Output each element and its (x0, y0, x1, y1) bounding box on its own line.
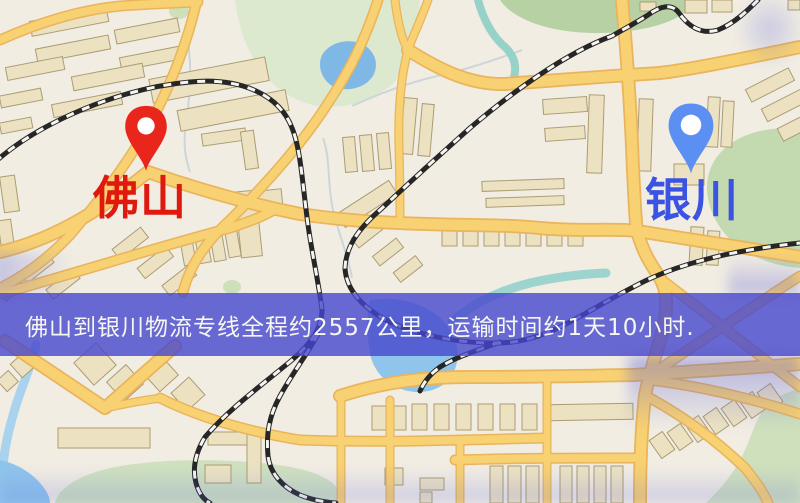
destination-city-label: 银川 (622, 176, 762, 224)
map-background-image (0, 0, 800, 503)
route-info-text: 佛山到银川物流专线全程约2557公里，运输时间约1天10小时. (0, 308, 695, 342)
origin-city-label: 佛山 (70, 174, 210, 222)
route-info-banner: 佛山到银川物流专线全程约2557公里，运输时间约1天10小时. (0, 293, 800, 356)
map-canvas: 佛山 银川 佛山到银川物流专线全程约2557公里，运输时间约1天10小时. (0, 0, 800, 503)
destination-pin-icon[interactable] (663, 100, 719, 176)
origin-pin-icon[interactable] (120, 103, 172, 173)
